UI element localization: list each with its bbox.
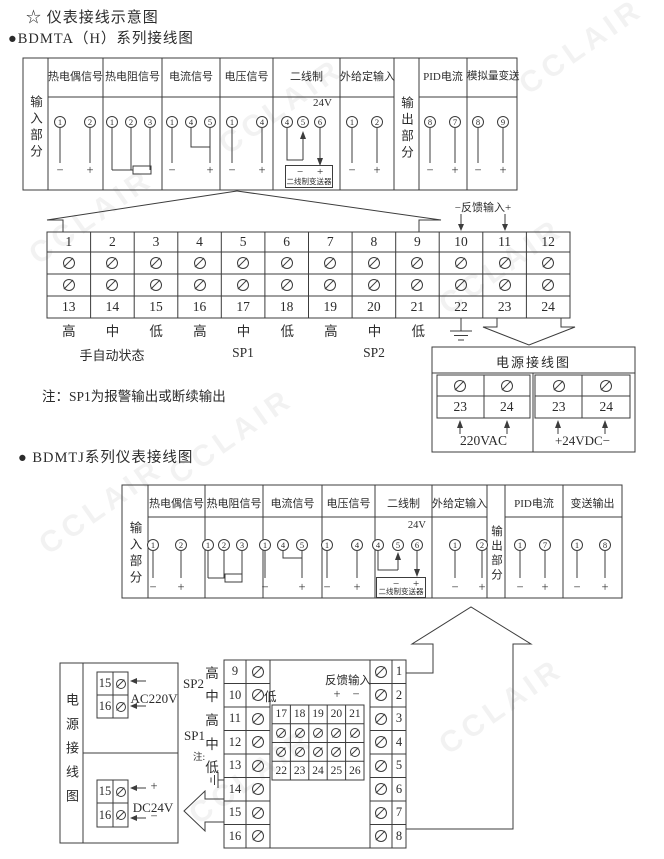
terminal-circle: 6 [314,116,326,128]
terminal-number: 17 [272,705,290,724]
mini-table-bottom-numbers: 2223242526 [272,761,364,780]
screw-terminal-icon [276,747,286,757]
block2-right-screws [370,660,392,848]
block1-high-mid-low-row: 高中低高中低高中低 [47,321,440,339]
table2-col-transmit: 变送输出 [563,497,622,511]
level-label: 低 [265,321,309,339]
polarity: + [331,688,343,701]
screw-terminal-icon [237,279,249,291]
screw-terminal-cell [439,252,483,274]
terminal-circle: 5 [204,116,216,128]
terminal-number: 20 [352,296,396,318]
two-wire-transmitter-box: − + 二线制变送器 [376,577,426,598]
screw-terminal-cell [221,252,265,274]
level-label: 中 [202,684,222,708]
screw-terminal-cell [47,252,91,274]
block1-bottom-numbers: 131415161718192021222324 [47,296,570,318]
screw-terminal-icon [499,257,511,269]
polarity: + [371,164,383,177]
screw-terminal-icon [313,728,323,738]
terminal-circle: 8 [599,539,611,551]
polarity: − [259,581,271,594]
power2-dc-screws [113,780,128,827]
terminal-number: 11 [224,707,246,731]
screw-terminal-cell [526,252,570,274]
terminal-number: 2 [91,232,135,252]
polarity: − [147,581,159,594]
screw-terminal-cell [113,780,128,804]
terminal-number: 21 [396,296,440,318]
screw-terminal-cell [272,724,290,743]
page-title: ☆ 仪表接线示意图 [26,6,159,27]
terminal-number: 14 [91,296,135,318]
terminal-number: 24 [484,396,531,418]
terminal-number: 10 [224,684,246,708]
polarity: − [226,164,238,177]
low-label: 低 [264,686,277,705]
screw-terminal-icon [295,747,305,757]
terminal-number: 6 [392,778,406,802]
terminal-number: 1 [392,660,406,684]
terminal-circle: 2 [371,116,383,128]
screw-terminal-icon [194,279,206,291]
screw-terminal-icon [350,728,360,738]
screw-terminal-icon [150,279,162,291]
table1-col-thermocouple: 热电偶信号 [48,70,103,84]
terminal-number: 15 [97,672,113,695]
screw-terminal-icon [600,380,612,392]
screw-terminal-cell [113,695,128,718]
screw-terminal-icon [499,279,511,291]
polarity: + [148,780,160,793]
screw-terminal-cell [113,672,128,695]
screw-terminal-icon [455,279,467,291]
feedback-input-label: −反馈输入+ [443,199,523,215]
terminal-number: 23 [535,396,583,418]
screw-terminal-icon [116,679,126,689]
power2-dc-numbers: 1516 [97,780,113,827]
screw-terminal-cell [309,724,327,743]
screw-terminal-icon [194,257,206,269]
table2-col-thermocouple: 热电偶信号 [148,497,205,511]
table2-col-external: 外给定输入 [432,497,487,511]
wiring-diagram-page: CCLAIR CCLAIR CCLAIR CCLAIR CCLAIR CCLAI… [0,0,664,859]
screw-terminal-icon [411,279,423,291]
screw-terminal-icon [542,257,554,269]
section2-title: ● BDMTJ系列仪表接线图 [18,446,193,467]
level-label: 高 [309,321,353,339]
terminal-circle: 4 [277,539,289,551]
terminal-number: 15 [224,801,246,825]
polarity: − [350,688,362,701]
level-label: 中 [91,321,135,339]
terminal-number: 1 [47,232,91,252]
mini-table-screw-row-2 [272,743,364,762]
transmitter-label: 二线制变送器 [286,176,332,187]
polarity: + [84,164,96,177]
terminal-number: 7 [308,232,352,252]
screw-terminal-icon [324,279,336,291]
terminal-circle: 1 [259,539,271,551]
table1-col-rtd: 热电阻信号 [103,70,162,84]
block2-left-numbers: 910111213141516 [224,660,246,848]
terminal-number: 7 [392,801,406,825]
polarity: + [476,581,488,594]
screw-terminal-cell [134,274,178,296]
polarity: − [321,581,333,594]
terminal-circle: 7 [449,116,461,128]
level-label: 低 [134,321,178,339]
terminal-number: 9 [396,232,440,252]
screw-terminal-icon [542,279,554,291]
screw-terminal-icon [116,787,126,797]
terminal-number: 21 [346,705,364,724]
polarity: + [351,581,363,594]
screw-terminal-icon [454,380,466,392]
manual-auto-label: 手自动状态 [77,345,147,364]
24v-label: 24V [300,97,332,109]
block1-screw-row-1 [47,252,570,274]
polarity: + [256,164,268,177]
table2-col-current: 电流信号 [263,497,322,511]
power2-ac-voltage-label: AC220V [129,691,179,707]
terminal-number: 26 [346,761,364,780]
screw-terminal-cell [370,731,392,755]
screw-terminal-icon [252,689,264,701]
mini-table-screw-row-1 [272,724,364,743]
screw-terminal-cell [346,743,364,762]
polarity: + [599,581,611,594]
screw-terminal-cell [246,754,270,778]
terminal-number: 5 [221,232,265,252]
terminal-circle: 8 [424,116,436,128]
screw-terminal-cell [178,274,222,296]
terminal-number: 23 [290,761,308,780]
screw-terminal-cell [396,274,440,296]
level-label: 低 [396,321,440,339]
screw-terminal-icon [375,760,387,772]
polarity: − [54,164,66,177]
table2-col-pid: PID电流 [505,497,563,511]
screw-terminal-icon [324,257,336,269]
terminal-circle: 2 [125,116,137,128]
screw-terminal-icon [553,380,565,392]
screw-terminal-icon [411,257,423,269]
table1-input-section-label: 输入部分 [23,90,48,166]
terminal-number: 22 [439,296,483,318]
terminal-circle: 2 [84,116,96,128]
screw-terminal-icon [281,279,293,291]
power1-ac-numbers: 2324 [437,396,530,418]
screw-terminal-icon [375,807,387,819]
screw-terminal-cell [437,375,484,396]
terminal-circle: 8 [472,116,484,128]
screw-terminal-cell [327,724,345,743]
screw-terminal-icon [116,810,126,820]
screw-terminal-icon [350,747,360,757]
screw-terminal-cell [290,743,308,762]
table1-output-section-label: 输出部分 [394,93,419,165]
screw-terminal-cell [526,274,570,296]
screw-terminal-cell [246,778,270,802]
screw-terminal-cell [352,252,396,274]
screw-terminal-cell [91,274,135,296]
terminal-number: 18 [290,705,308,724]
note-text: 注：SP1为报警输出或断续输出 [42,385,226,405]
polarity: + [539,581,551,594]
screw-terminal-icon [375,689,387,701]
level-label: 高 [202,707,222,731]
terminal-number: 6 [265,232,309,252]
terminal-number: 18 [265,296,309,318]
block2-right-numbers: 12345678 [392,660,406,848]
polarity: + [449,164,461,177]
terminal-circle: 3 [236,539,248,551]
screw-terminal-icon [368,257,380,269]
polarity: − [346,164,358,177]
section1-title: ●BDMTA（H）系列接线图 [8,27,194,48]
power2-ac-screws [113,672,128,718]
terminal-circle: 1 [346,116,358,128]
power2-ac-numbers: 1516 [97,672,113,718]
power1-ac-screws [437,375,530,396]
level-label: 中 [353,321,397,339]
screw-terminal-icon [252,713,264,725]
screw-terminal-icon [237,257,249,269]
terminal-circle: 7 [539,539,551,551]
terminal-number: 8 [392,825,406,849]
screw-terminal-icon [252,783,264,795]
terminal-number: 3 [134,232,178,252]
terminal-number: 19 [309,705,327,724]
terminal-number: 12 [526,232,570,252]
mini-table-top-numbers: 1718192021 [272,705,364,724]
table1-col-current: 电流信号 [162,70,220,84]
terminal-circle: 1 [166,116,178,128]
screw-terminal-icon [331,747,341,757]
terminal-circle: 4 [372,539,384,551]
screw-terminal-icon [252,736,264,748]
screw-terminal-icon [375,736,387,748]
terminal-number: 15 [134,296,178,318]
screw-terminal-icon [63,279,75,291]
terminal-number: 2 [392,684,406,708]
terminal-number: 4 [178,232,222,252]
terminal-circle: 4 [185,116,197,128]
terminal-number: 14 [224,778,246,802]
screw-terminal-cell [290,724,308,743]
transmitter-label: 二线制变送器 [377,586,425,597]
table1-col-pid: PID电流 [419,70,467,84]
terminal-number: 5 [392,754,406,778]
terminal-circle: 1 [54,116,66,128]
screw-terminal-cell [370,825,392,849]
screw-terminal-icon [252,807,264,819]
terminal-number: 13 [47,296,91,318]
terminal-number: 16 [224,825,246,849]
block1-top-numbers: 123456789101112 [47,232,570,252]
terminal-number: 23 [483,296,527,318]
terminal-number: 20 [327,705,345,724]
power1-dc-voltage-label: +24VDC− [535,433,630,449]
sp2-label: SP2 [183,676,204,692]
terminal-circle: 1 [226,116,238,128]
sp1-label: SP1 [218,345,268,361]
power1-dc-numbers: 2324 [535,396,630,418]
screw-terminal-icon [295,728,305,738]
table1-col-voltage: 电压信号 [220,70,273,84]
terminal-circle: 2 [218,539,230,551]
screw-terminal-icon [106,257,118,269]
terminal-circle: 1 [106,116,118,128]
terminal-number: 11 [483,232,527,252]
level-label: 高 [47,321,91,339]
polarity: + [204,164,216,177]
screw-terminal-cell [272,743,290,762]
terminal-number: 23 [437,396,484,418]
table1-col-analog: 模拟量变送 [467,70,517,84]
table2-output-section-label: 输出部分 [487,515,505,593]
screw-terminal-cell [352,274,396,296]
terminal-number: 3 [392,707,406,731]
screw-terminal-icon [368,279,380,291]
terminal-circle: 6 [411,539,423,551]
screw-terminal-cell [439,274,483,296]
screw-terminal-icon [63,257,75,269]
terminal-number: 9 [224,660,246,684]
screw-terminal-cell [396,252,440,274]
terminal-circle: 5 [296,539,308,551]
terminal-circle: 3 [144,116,156,128]
screw-terminal-cell [246,825,270,849]
terminal-number: 24 [309,761,327,780]
terminal-circle: 1 [449,539,461,551]
screw-terminal-icon [331,728,341,738]
polarity: − [449,581,461,594]
screw-terminal-icon [375,713,387,725]
screw-terminal-cell [246,731,270,755]
screw-terminal-icon [455,257,467,269]
screw-terminal-icon [252,830,264,842]
terminal-number: 17 [221,296,265,318]
screw-terminal-cell [308,252,352,274]
terminal-number: 4 [392,731,406,755]
screw-terminal-cell [134,252,178,274]
polarity: + [175,581,187,594]
polarity: − [514,581,526,594]
terminal-number: 10 [439,232,483,252]
terminal-circle: 1 [571,539,583,551]
terminal-number: 22 [272,761,290,780]
sp2-label: SP2 [349,345,399,361]
table2-col-two-wire: 二线制 [375,497,432,511]
power2-title: 电源接线图 [60,663,83,843]
terminal-number: 19 [308,296,352,318]
screw-terminal-icon [106,279,118,291]
screw-terminal-icon [501,380,513,392]
terminal-number: 24 [526,296,570,318]
note-mark: 注: [193,749,205,763]
screw-terminal-cell [309,743,327,762]
block1-screw-row-2 [47,274,570,296]
screw-terminal-cell [246,660,270,684]
screw-terminal-cell [47,274,91,296]
polarity: − [148,810,160,823]
screw-terminal-icon [276,728,286,738]
terminal-number: 25 [327,761,345,780]
terminal-circle: 1 [514,539,526,551]
level-label: 高 [202,660,222,684]
two-wire-transmitter-box: − + 二线制变送器 [285,165,333,188]
screw-terminal-cell [308,274,352,296]
level-label: 高 [178,321,222,339]
power1-ac-voltage-label: 220VAC [437,433,530,449]
screw-terminal-cell [265,274,309,296]
screw-terminal-icon [313,747,323,757]
level-label: 中 [222,321,266,339]
terminal-number: 13 [224,754,246,778]
table1-col-two-wire: 二线制 [273,70,340,84]
screw-terminal-icon [252,666,264,678]
power1-dc-screws [535,375,630,396]
screw-terminal-cell [370,707,392,731]
terminal-circle: 9 [497,116,509,128]
screw-terminal-cell [327,743,345,762]
screw-terminal-cell [484,375,531,396]
sp1-label: SP1 [184,728,205,744]
polarity: − [472,164,484,177]
24v-label: 24V [396,520,426,531]
screw-terminal-cell [178,252,222,274]
polarity: − [424,164,436,177]
terminal-circle: 4 [256,116,268,128]
screw-terminal-cell [370,754,392,778]
screw-terminal-cell [346,724,364,743]
terminal-circle: 5 [297,116,309,128]
screw-terminal-icon [375,783,387,795]
terminal-circle: 1 [202,539,214,551]
screw-terminal-cell [583,375,631,396]
polarity: − [571,581,583,594]
screw-terminal-cell [370,801,392,825]
terminal-number: 8 [352,232,396,252]
screw-terminal-cell [91,252,135,274]
feedback-input-label: 反馈输入 [318,672,378,688]
terminal-number: 24 [583,396,631,418]
screw-terminal-cell [483,252,527,274]
terminal-circle: 2 [476,539,488,551]
screw-terminal-cell [246,707,270,731]
terminal-number: 16 [97,695,113,718]
power1-title: 电源接线图 [432,352,635,371]
screw-terminal-cell [483,274,527,296]
terminal-circle: 1 [321,539,333,551]
terminal-number: 16 [178,296,222,318]
screw-terminal-icon [252,760,264,772]
terminal-circle: 5 [392,539,404,551]
terminal-number: 15 [97,780,113,804]
polarity: + [497,164,509,177]
screw-terminal-cell [221,274,265,296]
table2-col-voltage: 电压信号 [322,497,375,511]
terminal-circle: 4 [281,116,293,128]
screw-terminal-icon [150,257,162,269]
terminal-circle: 1 [147,539,159,551]
screw-terminal-icon [375,830,387,842]
screw-terminal-cell [113,804,128,828]
terminal-circle: 4 [351,539,363,551]
table1-col-external: 外给定输入 [340,70,394,84]
